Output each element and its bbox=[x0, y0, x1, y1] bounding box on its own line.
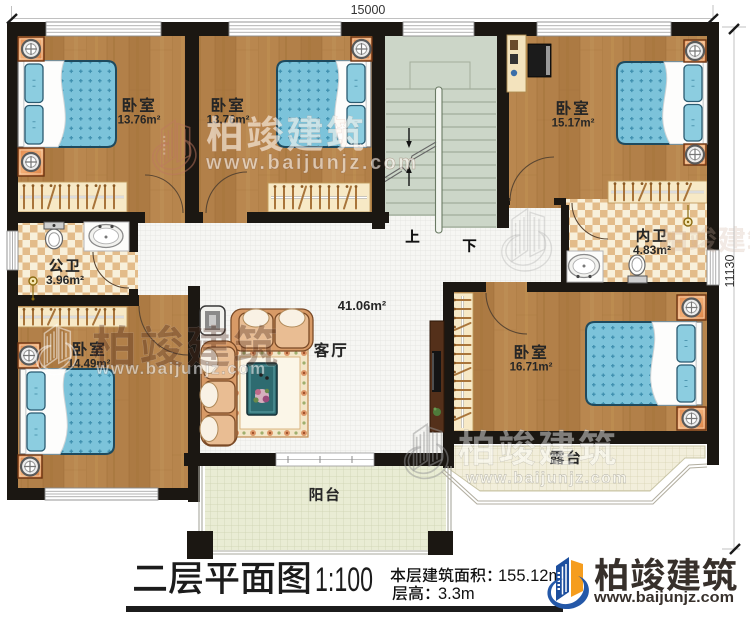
svg-text:13.76m²: 13.76m² bbox=[118, 115, 161, 127]
svg-text:www.baijunjz.com: www.baijunjz.com bbox=[465, 470, 628, 487]
svg-text:16.71m²: 16.71m² bbox=[510, 362, 553, 374]
svg-text:11130: 11130 bbox=[723, 255, 737, 288]
svg-text:www.baijunjz.com: www.baijunjz.com bbox=[593, 590, 734, 606]
svg-text:15000: 15000 bbox=[351, 3, 386, 17]
svg-text:www.baijunjz.com: www.baijunjz.com bbox=[95, 359, 267, 378]
svg-text:41.06m²: 41.06m² bbox=[338, 298, 387, 313]
svg-text:1:100: 1:100 bbox=[315, 561, 373, 599]
svg-text:www.baijunjz.com: www.baijunjz.com bbox=[205, 152, 419, 174]
svg-text:3.3m: 3.3m bbox=[438, 585, 475, 603]
svg-text:3.96m²: 3.96m² bbox=[46, 273, 84, 287]
svg-text:15.17m²: 15.17m² bbox=[552, 118, 595, 130]
